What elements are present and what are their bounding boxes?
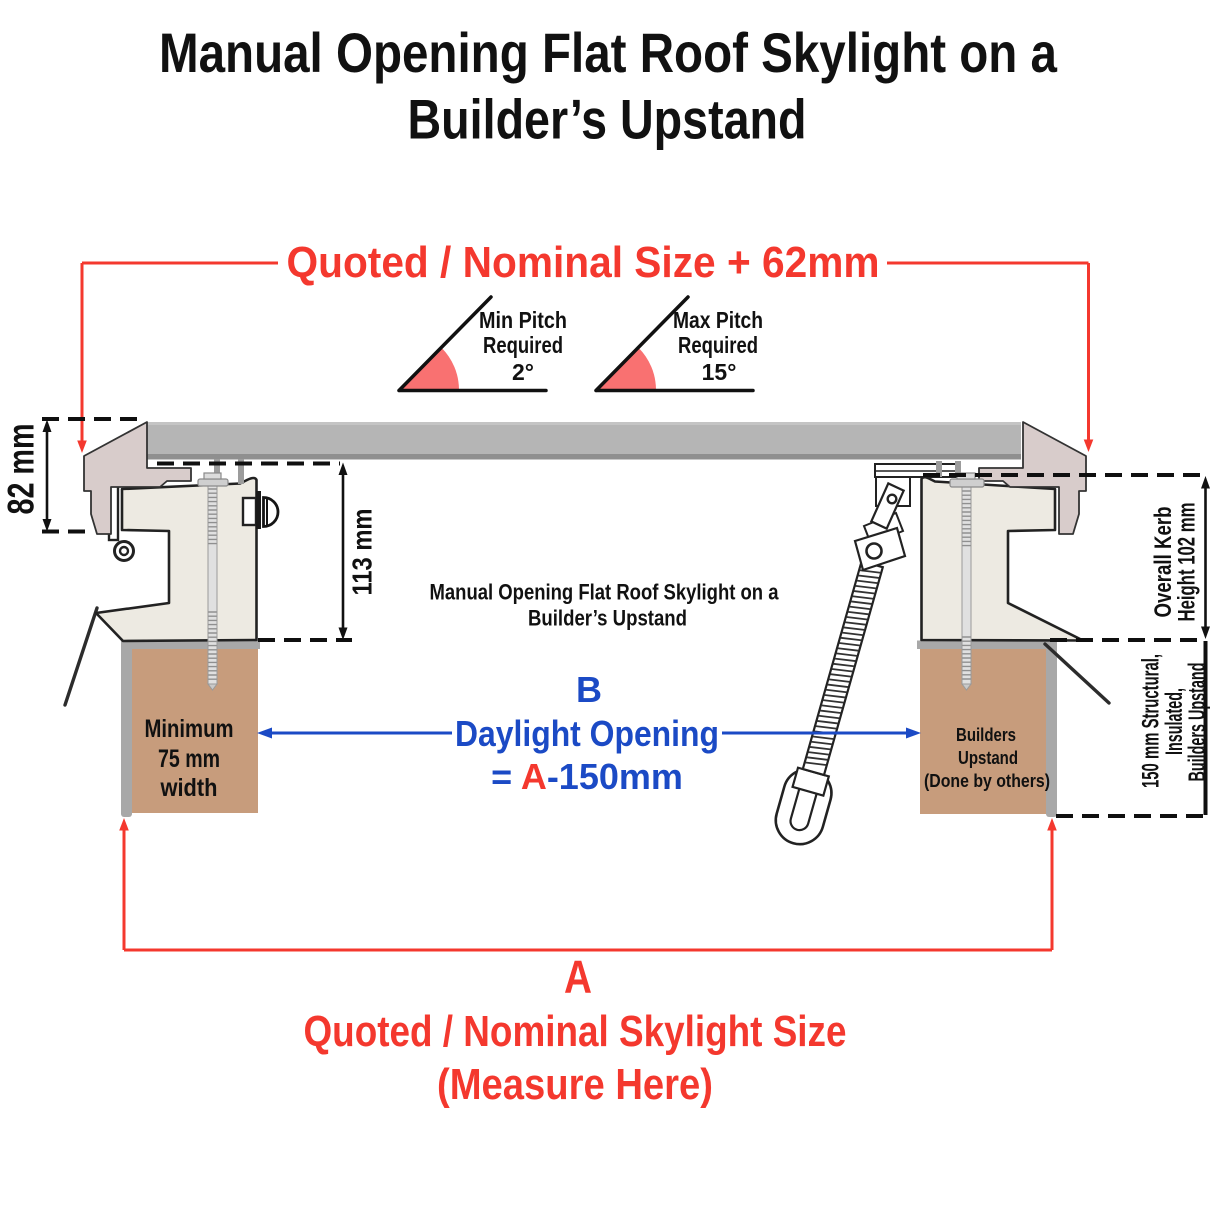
- svg-text:Minimum: Minimum: [145, 715, 234, 743]
- svg-text:width: width: [160, 774, 218, 802]
- svg-text:Height 102 mm: Height 102 mm: [1174, 503, 1201, 622]
- svg-text:Manual Opening Flat Roof Skyli: Manual Opening Flat Roof Skylight on a: [159, 21, 1058, 84]
- svg-text:2°: 2°: [512, 359, 534, 385]
- svg-text:(Measure Here): (Measure Here): [437, 1060, 713, 1109]
- svg-text:Max Pitch: Max Pitch: [673, 307, 763, 333]
- svg-text:15°: 15°: [702, 359, 737, 385]
- svg-text:75 mm: 75 mm: [158, 745, 220, 773]
- svg-text:Builder’s Upstand: Builder’s Upstand: [528, 606, 687, 631]
- svg-text:A: A: [564, 951, 592, 1003]
- svg-text:Manual Opening Flat Roof Skyli: Manual Opening Flat Roof Skylight on a: [430, 580, 780, 605]
- svg-text:(Done by others): (Done by others): [924, 771, 1050, 791]
- svg-text:113 mm: 113 mm: [347, 509, 378, 596]
- svg-text:82 mm: 82 mm: [1, 424, 42, 515]
- svg-text:B: B: [576, 669, 602, 710]
- svg-text:Builders Upstand: Builders Upstand: [1184, 663, 1211, 782]
- svg-text:Upstand: Upstand: [958, 748, 1018, 768]
- svg-text:Quoted / Nominal Skylight Size: Quoted / Nominal Skylight Size: [304, 1007, 847, 1056]
- svg-text:Daylight Opening: Daylight Opening: [455, 713, 719, 754]
- svg-text:Builder’s Upstand: Builder’s Upstand: [408, 88, 807, 151]
- svg-text:= A-150mm: = A-150mm: [491, 756, 683, 797]
- svg-text:Quoted / Nominal Size + 62mm: Quoted / Nominal Size + 62mm: [287, 238, 880, 287]
- svg-text:Required: Required: [678, 332, 758, 358]
- svg-text:Min Pitch: Min Pitch: [479, 307, 567, 333]
- svg-text:Required: Required: [483, 332, 563, 358]
- svg-text:Builders: Builders: [956, 725, 1016, 745]
